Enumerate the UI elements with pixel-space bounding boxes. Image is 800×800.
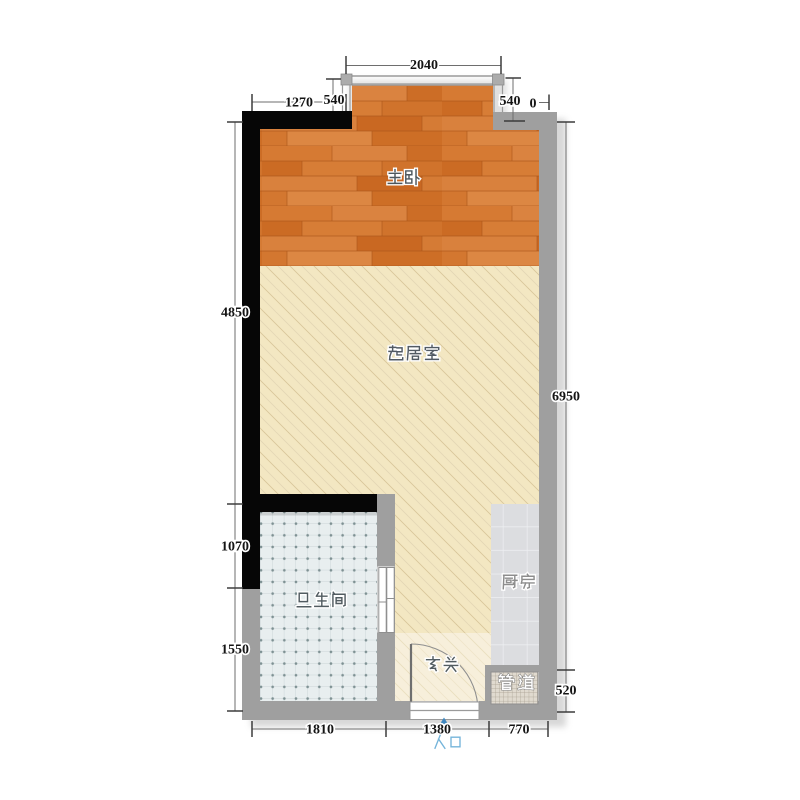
svg-text:540: 540 bbox=[500, 94, 521, 109]
svg-text:6950: 6950 bbox=[552, 390, 580, 405]
svg-text:1070: 1070 bbox=[221, 540, 249, 555]
svg-text:1810: 1810 bbox=[306, 723, 334, 738]
svg-text:0: 0 bbox=[530, 97, 537, 112]
svg-text:770: 770 bbox=[509, 723, 530, 738]
svg-text:2040: 2040 bbox=[410, 58, 438, 73]
svg-text:4850: 4850 bbox=[221, 306, 249, 321]
svg-text:1550: 1550 bbox=[221, 643, 249, 658]
svg-text:1380: 1380 bbox=[423, 723, 451, 738]
svg-text:540: 540 bbox=[324, 93, 345, 108]
svg-text:1270: 1270 bbox=[285, 96, 313, 111]
svg-text:520: 520 bbox=[556, 684, 577, 699]
